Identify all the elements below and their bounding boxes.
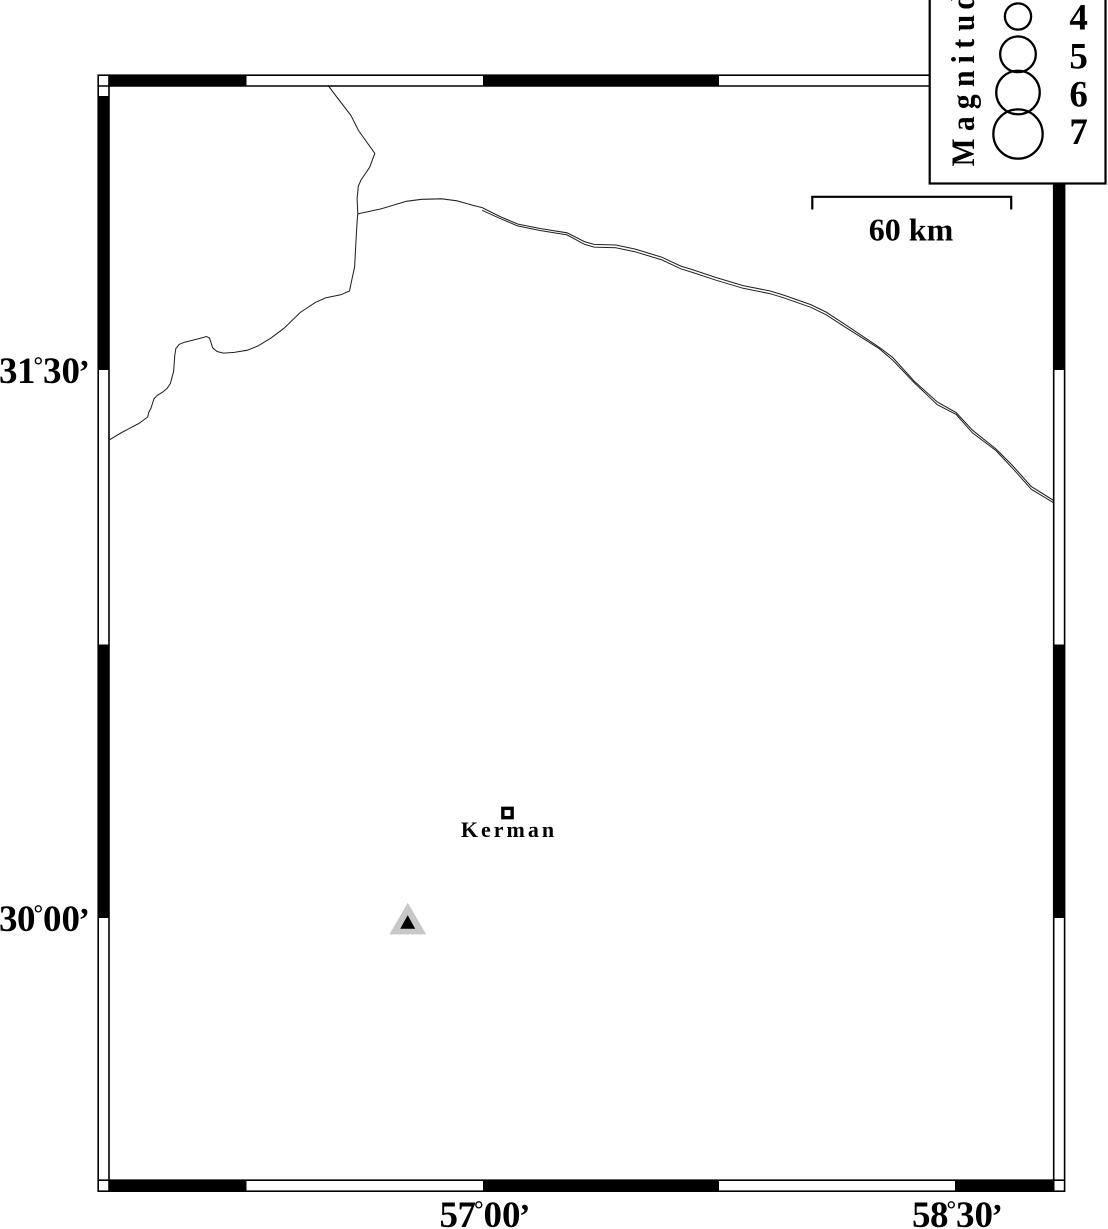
svg-text:30°00’: 30°00’ bbox=[0, 899, 90, 940]
svg-text:M: M bbox=[945, 138, 982, 166]
svg-text:g: g bbox=[945, 94, 982, 109]
svg-text:58°30’: 58°30’ bbox=[912, 1195, 1003, 1229]
svg-text:u: u bbox=[945, 15, 982, 32]
svg-text:a: a bbox=[945, 116, 982, 131]
svg-text:5: 5 bbox=[1069, 37, 1088, 78]
svg-text:Kerman: Kerman bbox=[461, 817, 557, 842]
svg-text:n: n bbox=[945, 70, 982, 87]
svg-text:31°30’: 31°30’ bbox=[0, 351, 90, 392]
svg-text:57°00’: 57°00’ bbox=[440, 1195, 531, 1229]
svg-text:4: 4 bbox=[1069, 0, 1088, 39]
svg-text:6: 6 bbox=[1069, 75, 1088, 116]
svg-text:d: d bbox=[945, 0, 982, 10]
svg-text:7: 7 bbox=[1069, 112, 1088, 153]
svg-text:60 km: 60 km bbox=[869, 212, 954, 248]
svg-text:i: i bbox=[945, 55, 982, 64]
svg-text:t: t bbox=[945, 38, 982, 48]
